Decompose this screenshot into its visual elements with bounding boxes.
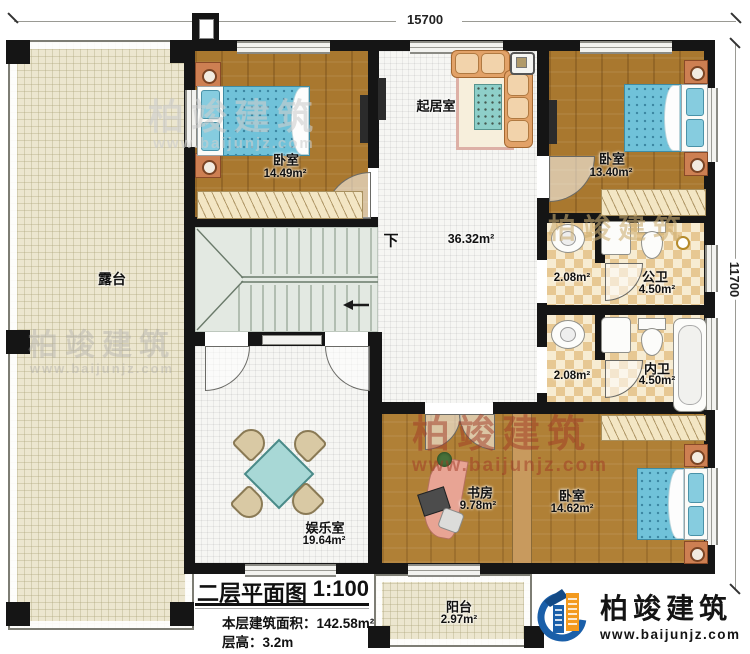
watermark-text: 柏竣建筑 — [548, 214, 688, 243]
watermark: 柏竣建筑 www.baijunjz.com — [412, 416, 608, 476]
floor-area-value: 142.58m² — [317, 616, 375, 631]
bedroom-tr-area: 13.40m² — [590, 167, 633, 179]
side-table-lamp — [516, 57, 527, 68]
terrace-label: 露台 — [98, 269, 126, 289]
tv — [378, 78, 386, 120]
balcony-label: 阳台 — [446, 597, 472, 616]
staircase — [195, 227, 378, 332]
game-room-area: 19.64m² — [303, 535, 346, 547]
nightstand — [684, 60, 708, 84]
right-dimension-label: 11700 — [727, 259, 742, 300]
sofa-cushion — [507, 120, 529, 142]
bedroom-tl-area: 14.49m² — [264, 168, 307, 180]
watermark: 柏竣建筑 — [548, 214, 688, 243]
washing-machine — [601, 317, 631, 353]
top-dimension-label: 15700 — [404, 12, 446, 27]
bathtub-basin — [678, 325, 702, 405]
brand-logo: 柏竣建筑 www.baijunjz.com — [536, 580, 748, 648]
coffee-table — [474, 84, 502, 130]
window — [237, 41, 330, 54]
study-area: 9.78m² — [460, 500, 496, 512]
tv — [360, 95, 368, 143]
washbasin-bowl — [560, 327, 576, 342]
wall-hall-study — [370, 402, 425, 414]
public-bath-label: 公卫 — [642, 267, 668, 286]
window — [580, 41, 672, 54]
public-bath-area: 4.50m² — [639, 284, 675, 296]
wall-stairs-gameroom — [184, 332, 205, 346]
living-room-label: 起居室 — [416, 96, 455, 115]
watermark-url: www.baijunjz.com — [412, 456, 608, 476]
watermark-text: 柏竣建筑 — [148, 98, 320, 136]
watermark: 柏竣建筑 www.baijunjz.com — [148, 98, 320, 152]
brand-website: www.baijunjz.com — [600, 627, 741, 642]
bedroom-tl-label: 卧室 — [273, 150, 299, 169]
nightstand — [684, 152, 708, 176]
tv — [549, 100, 557, 144]
study-label: 书房 — [467, 483, 493, 502]
floor-area-label: 本层建筑面积： — [222, 616, 317, 631]
pillow — [686, 88, 704, 116]
bedroom-tr-label: 卧室 — [599, 149, 625, 168]
wardrobe — [601, 415, 706, 441]
wall-bath-divider — [537, 305, 715, 315]
terrace-column — [170, 602, 194, 626]
top-dimension-line — [462, 21, 736, 22]
terrace-column — [6, 602, 30, 626]
terrace-column — [6, 40, 30, 64]
sofa-cushion — [455, 53, 479, 74]
ensuite-bath-area: 4.50m² — [639, 375, 675, 387]
floor-plan: 15700 11700 — [0, 0, 750, 654]
chimney-flue — [199, 19, 214, 39]
brand-logo-icon — [536, 583, 592, 645]
wash-lower-area: 2.08m² — [554, 370, 590, 382]
balcony-area: 2.97m² — [441, 614, 477, 626]
bed-sheet — [668, 469, 684, 539]
bedroom-br-label: 卧室 — [559, 486, 585, 505]
living-room-area: 36.32m² — [448, 232, 495, 246]
floor-height-value: 3.2m — [263, 635, 294, 650]
bedroom-br-area: 14.62m² — [551, 503, 594, 515]
stairs-down-label: 下 — [383, 230, 398, 251]
terrace-column — [6, 330, 30, 354]
title-rule-thin — [195, 608, 369, 609]
watermark-text: 柏竣建筑 — [412, 416, 608, 456]
game-room-label: 娱乐室 — [305, 518, 344, 537]
nightstand — [684, 444, 708, 467]
watermark-url: www.baijunjz.com — [28, 362, 176, 376]
title-rule-thick — [195, 603, 369, 606]
wash-upper-area: 2.08m² — [554, 272, 590, 284]
sofa-cushion — [507, 74, 529, 96]
right-dimension-line — [735, 44, 736, 590]
pillow — [686, 119, 704, 147]
sofa-cushion — [507, 97, 529, 119]
pillow — [688, 506, 704, 536]
nightstand — [195, 62, 221, 87]
pillow — [688, 473, 704, 503]
stair-balustrade — [262, 335, 322, 345]
brand-name: 柏竣建筑 — [600, 587, 741, 627]
nightstand — [684, 541, 708, 564]
window — [705, 245, 718, 292]
wardrobe — [197, 191, 363, 219]
floor-height-line: 层高：3.2m — [222, 631, 293, 651]
wall-hall-wash — [537, 223, 547, 260]
nightstand — [195, 153, 221, 178]
wardrobe — [601, 189, 706, 216]
dimension-tick — [7, 12, 18, 23]
balcony-slider-door — [408, 564, 480, 577]
watermark: 柏竣建筑 www.baijunjz.com — [28, 330, 176, 375]
wall-living-bedroom — [537, 40, 549, 156]
floor-area-line: 本层建筑面积：142.58m² — [222, 612, 374, 632]
watermark-text: 柏竣建筑 — [28, 330, 176, 362]
floor-height-label: 层高： — [222, 635, 263, 650]
brand-text-group: 柏竣建筑 www.baijunjz.com — [600, 587, 741, 642]
wall-gameroom-hall — [368, 332, 382, 574]
bed-sheet — [664, 85, 680, 151]
sofa-cushion — [481, 53, 505, 74]
